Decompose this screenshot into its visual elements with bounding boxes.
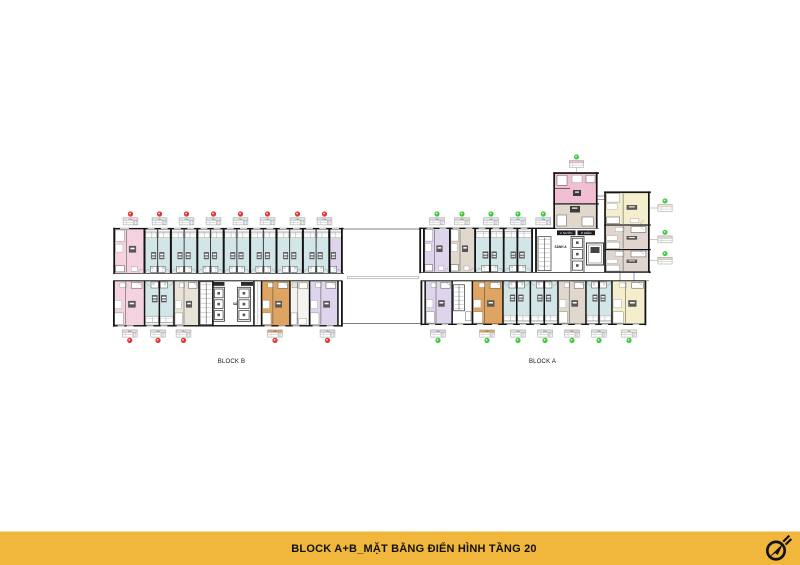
svg-text:Căn: Căn [129, 218, 133, 221]
svg-text:Căn: Căn [627, 330, 631, 333]
svg-text:Căn: Căn [489, 218, 493, 221]
svg-text:Căn: Căn [182, 330, 186, 333]
svg-text:Căn: Căn [436, 330, 440, 333]
svg-text:Căn: Căn [597, 330, 601, 333]
svg-text:Căn: Căn [516, 218, 520, 221]
svg-text:Căn: Căn [541, 218, 545, 221]
svg-text:Căn: Căn [296, 218, 300, 221]
svg-text:BLOCK B: BLOCK B [218, 359, 245, 365]
svg-text:Căn: Căn [239, 218, 243, 221]
svg-text:Căn: Căn [543, 330, 547, 333]
svg-text:Căn: Căn [323, 218, 327, 221]
svg-text:BLOCK A: BLOCK A [529, 359, 556, 365]
svg-text:Căn: Căn [273, 330, 277, 333]
svg-text:Căn: Căn [156, 330, 160, 333]
svg-text:Căn: Căn [570, 330, 574, 333]
svg-text:Căn: Căn [212, 218, 216, 221]
svg-text:P. ĐIỆN: P. ĐIỆN [581, 230, 591, 235]
svg-text:Căn: Căn [485, 330, 489, 333]
svg-text:Căn: Căn [128, 330, 132, 333]
svg-text:Căn: Căn [158, 218, 162, 221]
svg-text:BLOCK A+B_MẶT BẰNG ĐIỂN HÌNH T: BLOCK A+B_MẶT BẰNG ĐIỂN HÌNH TẦNG 20 [291, 542, 536, 555]
svg-text:V. NƯỚC: V. NƯỚC [560, 230, 574, 235]
svg-text:Căn: Căn [326, 330, 330, 333]
svg-text:SẢNH A: SẢNH A [554, 244, 567, 249]
svg-text:Căn: Căn [185, 218, 189, 221]
svg-text:Căn: Căn [516, 330, 520, 333]
svg-text:Căn: Căn [266, 218, 270, 221]
svg-text:Căn: Căn [435, 218, 439, 221]
svg-text:Căn: Căn [460, 218, 464, 221]
